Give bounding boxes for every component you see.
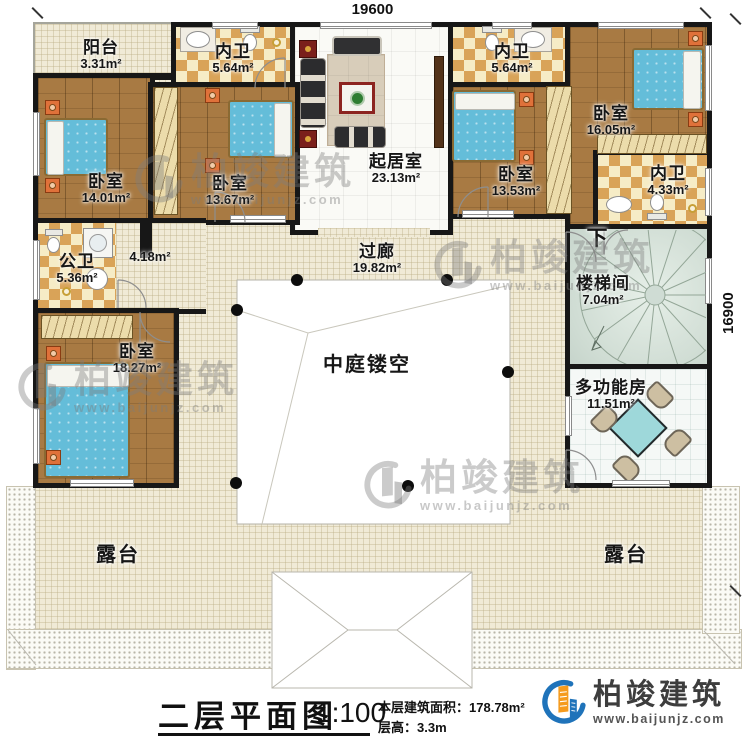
room-label-terrace-left: 露台 <box>96 544 140 566</box>
toilet <box>47 237 60 253</box>
room-label-bed2: 卧室 13.67m² <box>206 174 254 208</box>
wardrobe <box>154 87 178 215</box>
wardrobe <box>546 86 572 214</box>
bed <box>452 90 516 162</box>
window <box>70 479 134 487</box>
room-label-living: 起居室 23.13m² <box>369 152 423 186</box>
coffee-table <box>339 82 375 114</box>
window <box>705 168 712 216</box>
nightstand <box>205 158 220 173</box>
room-label-multi: 多功能房 11.51m² <box>575 378 647 412</box>
window <box>212 22 258 29</box>
dimension-tick <box>729 13 741 25</box>
brand-name: 柏竣建筑 <box>593 680 725 710</box>
window <box>462 210 514 218</box>
sofa <box>300 58 326 128</box>
stair-direction-label: 下 <box>587 227 608 251</box>
plan-scale: 1:100 <box>316 697 386 729</box>
toilet <box>45 229 63 236</box>
window <box>705 45 712 111</box>
window <box>705 258 712 304</box>
window <box>565 396 572 436</box>
window <box>320 22 432 29</box>
dimension-height: 16900 <box>720 292 737 334</box>
sofa <box>332 36 382 56</box>
room-label-bath1: 内卫 5.64m² <box>212 42 253 76</box>
floor-plan-page: 阳台 3.31m² 内卫 5.64m² 内卫 5.64m² 起居室 23.13m… <box>0 0 750 744</box>
window <box>33 408 40 464</box>
window <box>33 112 40 176</box>
bed-pillow <box>683 51 701 109</box>
window <box>230 215 286 223</box>
toilet <box>647 213 667 220</box>
tv-cabinet <box>434 56 444 148</box>
room-label-atrium: 中庭镂空 <box>323 354 411 376</box>
end-table <box>299 130 317 148</box>
terrace-edge-strip-bottom <box>6 629 742 669</box>
room-label-public-bath: 公卫 5.36m² <box>56 252 97 286</box>
nightstand <box>46 346 61 361</box>
nightstand <box>46 450 61 465</box>
bed-pillow <box>274 103 291 157</box>
end-table <box>299 40 317 58</box>
room-label-closet: 4.18m² <box>129 250 170 265</box>
floor-drain <box>272 38 281 47</box>
room-label-corridor: 过廊 19.82m² <box>353 242 401 276</box>
dimension-width: 19600 <box>33 1 712 18</box>
window <box>492 22 532 29</box>
room-label-bed4: 卧室 16.05m² <box>587 104 635 138</box>
room-label-stairwell: 楼梯间 7.04m² <box>576 274 630 308</box>
room-label-balcony: 阳台 3.31m² <box>80 38 121 72</box>
floor-drain <box>62 287 71 296</box>
sofa <box>334 126 386 148</box>
nightstand <box>45 100 60 115</box>
brand-logo: 柏竣建筑 www.baijunjz.com <box>540 676 725 730</box>
floor-height-row: 层高：3.3m <box>378 718 525 738</box>
plant <box>352 93 363 104</box>
room-label-bath2: 内卫 5.64m² <box>491 42 532 76</box>
title-underline <box>158 733 370 736</box>
brand-logo-icon <box>540 676 586 730</box>
nightstand <box>519 92 534 107</box>
room-label-bed1: 卧室 14.01m² <box>82 172 130 206</box>
window <box>33 240 40 300</box>
plan-info: 本层建筑面积：178.78m² 层高：3.3m <box>378 698 525 738</box>
wardrobe <box>41 315 133 339</box>
plan-title: 二层平面图 <box>158 691 338 736</box>
brand-url: www.baijunjz.com <box>593 712 725 726</box>
room-label-bed5: 卧室 18.27m² <box>113 342 161 376</box>
sink <box>606 196 632 213</box>
terrace-edge-strip-right <box>702 486 740 634</box>
floor-area-row: 本层建筑面积：178.78m² <box>378 698 525 718</box>
bed <box>44 118 108 176</box>
nightstand <box>519 150 534 165</box>
room-label-bed3: 卧室 13.53m² <box>492 165 540 199</box>
nightstand <box>688 31 703 46</box>
sink <box>186 31 210 48</box>
window <box>598 22 684 29</box>
floor-drain <box>688 204 697 213</box>
room-closet <box>116 218 206 314</box>
window <box>612 480 670 487</box>
nightstand <box>45 178 60 193</box>
bed-pillow <box>47 121 64 175</box>
bed <box>632 48 704 110</box>
room-label-bath3: 内卫 4.33m² <box>647 164 688 198</box>
nightstand <box>688 112 703 127</box>
bed <box>228 100 294 158</box>
living-opening <box>318 228 430 237</box>
room-label-terrace-right: 露台 <box>604 544 648 566</box>
bed-pillow <box>455 93 515 110</box>
nightstand <box>205 88 220 103</box>
